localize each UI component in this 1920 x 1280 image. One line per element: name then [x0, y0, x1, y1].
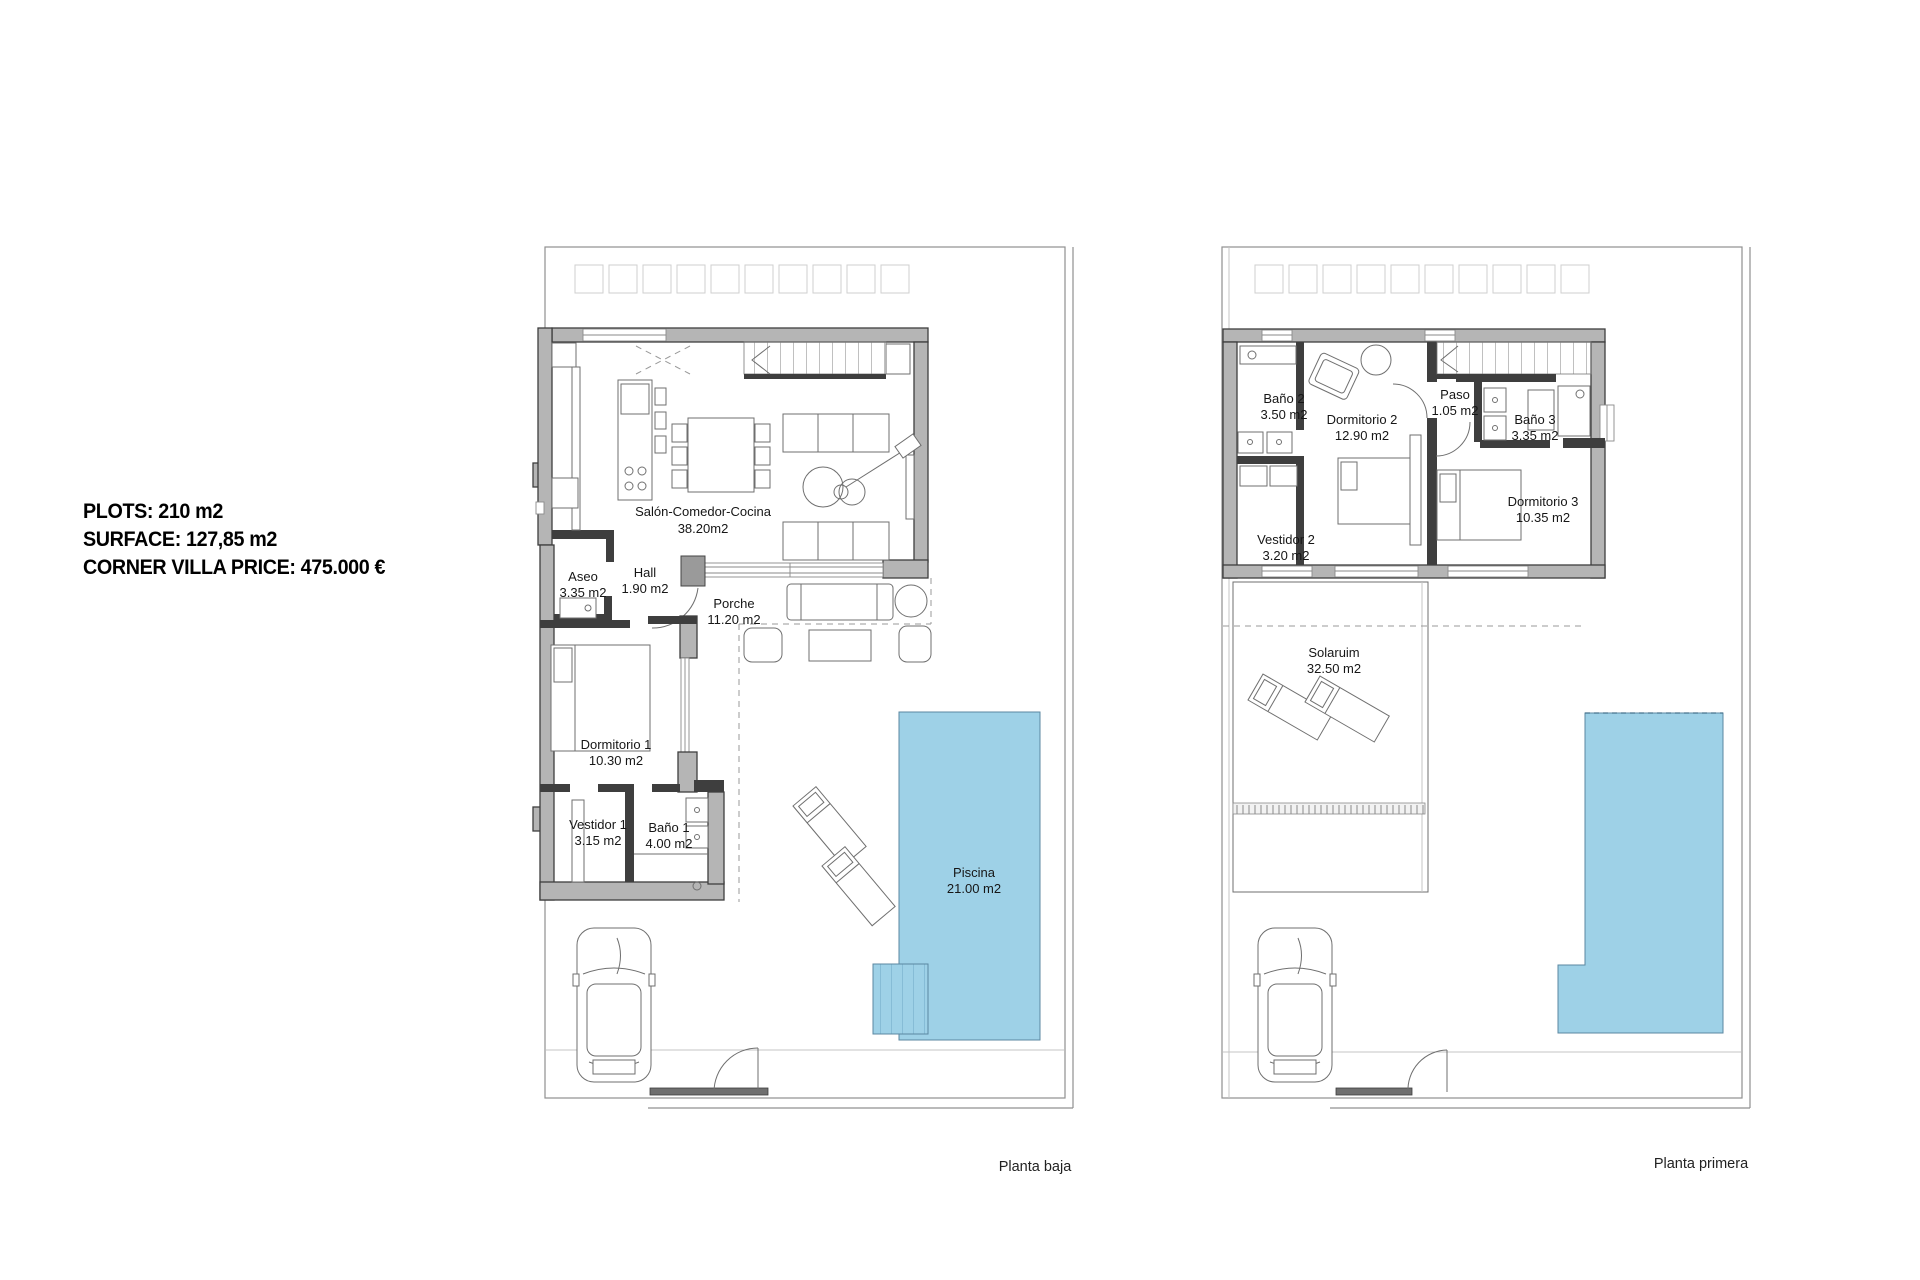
- label-solarium: Solaruim: [1308, 645, 1359, 660]
- pergola-squares-first: [1255, 265, 1589, 293]
- caption-planta-primera: Planta primera: [1654, 1156, 1749, 1172]
- dining-table: [672, 418, 770, 492]
- bedroom2-furniture: [1308, 345, 1427, 545]
- gate-ground: [650, 1048, 768, 1095]
- label-solarium-area: 32.50 m2: [1307, 661, 1361, 676]
- label-salon-area: 38.20m2: [678, 521, 729, 536]
- floorplan-drawing: Salón-Comedor-Cocina 38.20m2 Aseo 3.35 m…: [0, 0, 1920, 1280]
- car-first: [1254, 928, 1336, 1082]
- label-bano1: Baño 1: [648, 820, 689, 835]
- label-dormitorio2-area: 12.90 m2: [1335, 428, 1389, 443]
- label-bano1-area: 4.00 m2: [646, 836, 693, 851]
- caption-planta-baja: Planta baja: [999, 1159, 1072, 1175]
- front-door: [681, 556, 705, 586]
- label-paso: Paso: [1440, 387, 1470, 402]
- ground-floor-plan: Salón-Comedor-Cocina 38.20m2 Aseo 3.35 m…: [533, 247, 1073, 1175]
- pool-steps: [873, 964, 928, 1034]
- label-aseo-area: 3.35 m2: [560, 585, 607, 600]
- kitchen-island: [552, 343, 666, 530]
- label-paso-area: 1.05 m2: [1432, 403, 1479, 418]
- floorplan-page: PLOTS: 210 m2 SURFACE: 127,85 m2 CORNER …: [0, 0, 1920, 1280]
- gate-first: [1336, 1050, 1447, 1095]
- sun-loungers-ground: [793, 787, 895, 926]
- pool-first: [1558, 713, 1723, 1033]
- label-porche: Porche: [713, 596, 754, 611]
- first-floor-plan: Baño 2 3.50 m2 Dormitorio 2 12.90 m2 Pas…: [1222, 247, 1750, 1172]
- label-vestidor2: Vestidor 2: [1257, 532, 1315, 547]
- label-dormitorio1: Dormitorio 1: [581, 737, 652, 752]
- label-bano3: Baño 3: [1514, 412, 1555, 427]
- label-porche-area: 11.20 m2: [707, 612, 760, 627]
- label-piscina: Piscina: [953, 865, 996, 880]
- label-bano2: Baño 2: [1263, 391, 1304, 406]
- label-aseo: Aseo: [568, 569, 598, 584]
- label-dormitorio3-area: 10.35 m2: [1516, 510, 1570, 525]
- label-dormitorio3: Dormitorio 3: [1508, 494, 1579, 509]
- label-bano3-area: 3.35 m2: [1512, 428, 1559, 443]
- dressing2-furniture: [1240, 466, 1297, 486]
- solarium-area: [1223, 582, 1583, 892]
- staircase-ground: [636, 342, 910, 379]
- label-hall-area: 1.90 m2: [622, 581, 669, 596]
- label-hall: Hall: [634, 565, 657, 580]
- car-ground: [573, 928, 655, 1082]
- label-dormitorio1-area: 10.30 m2: [589, 753, 643, 768]
- label-vestidor1: Vestidor 1: [569, 817, 627, 832]
- label-vestidor2-area: 3.20 m2: [1263, 548, 1310, 563]
- label-dormitorio2: Dormitorio 2: [1327, 412, 1398, 427]
- label-salon: Salón-Comedor-Cocina: [635, 504, 772, 519]
- label-vestidor1-area: 3.15 m2: [575, 833, 622, 848]
- paso-door: [1436, 422, 1470, 456]
- label-piscina-area: 21.00 m2: [947, 881, 1001, 896]
- staircase-first: [1437, 342, 1591, 379]
- pergola-squares-ground: [575, 265, 909, 293]
- solarium-walkway: [1233, 803, 1425, 814]
- label-bano2-area: 3.50 m2: [1261, 407, 1308, 422]
- living-room-furniture: [783, 414, 921, 560]
